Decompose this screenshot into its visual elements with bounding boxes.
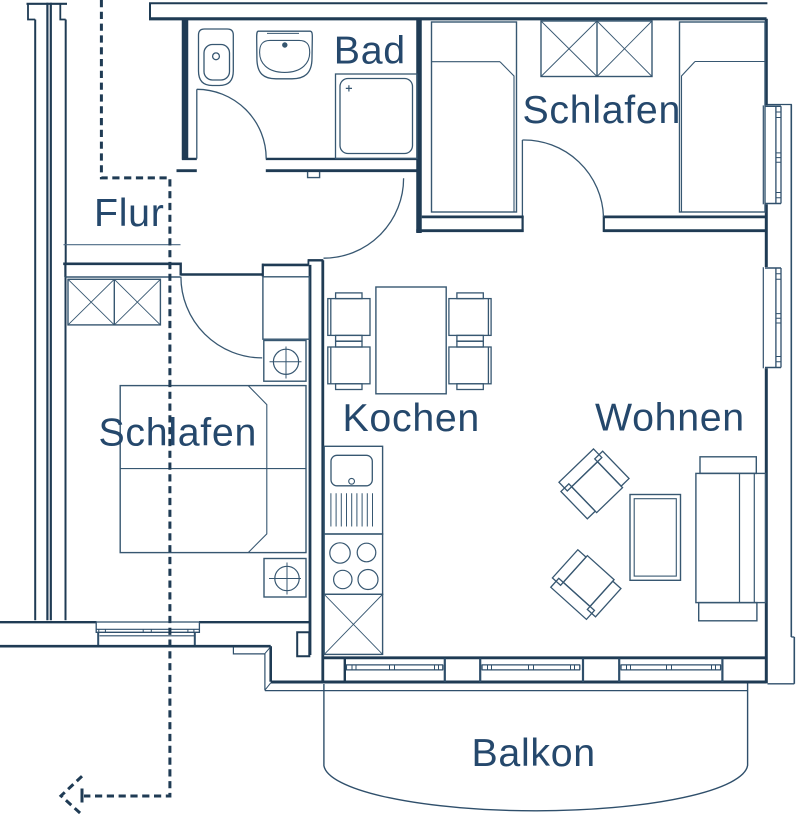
svg-text:Schlafen: Schlafen bbox=[523, 88, 682, 132]
svg-text:Schlafen: Schlafen bbox=[99, 411, 258, 455]
svg-text:Balkon: Balkon bbox=[472, 731, 596, 775]
svg-text:Wohnen: Wohnen bbox=[595, 396, 745, 440]
svg-text:Kochen: Kochen bbox=[343, 396, 480, 440]
svg-text:Bad: Bad bbox=[334, 28, 406, 72]
svg-text:Flur: Flur bbox=[94, 191, 164, 235]
